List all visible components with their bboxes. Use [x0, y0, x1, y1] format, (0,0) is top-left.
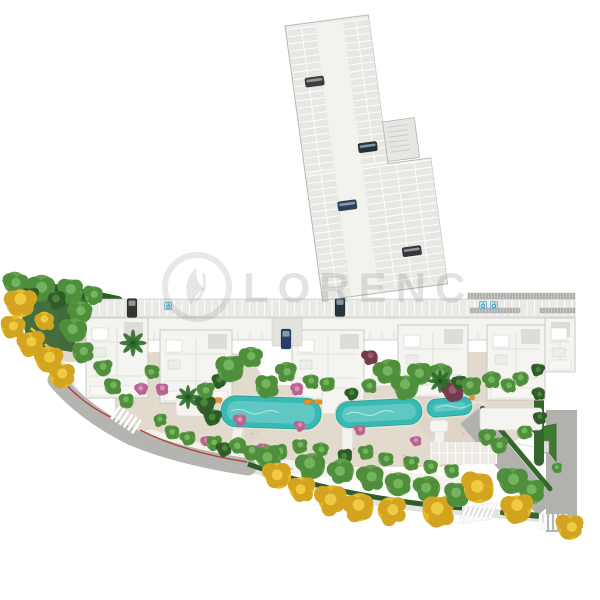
canopy — [222, 445, 228, 451]
car-windshield — [129, 301, 136, 306]
canopy — [237, 417, 242, 422]
canopy — [400, 379, 410, 389]
roof-unit — [208, 334, 227, 349]
canopy — [80, 347, 88, 355]
tree-green — [319, 377, 334, 391]
canopy — [415, 368, 424, 377]
zebra-stripe — [539, 514, 542, 530]
zebra-stripe — [549, 514, 552, 530]
furniture — [406, 355, 418, 364]
canopy — [522, 428, 528, 434]
canopy — [506, 382, 512, 388]
vent-grille — [468, 293, 575, 299]
palm-tree — [120, 330, 147, 357]
canopy — [169, 429, 175, 435]
tree-yellow — [314, 485, 346, 516]
tree-green — [517, 425, 532, 439]
canopy — [537, 414, 542, 419]
canopy — [484, 434, 491, 441]
site-svg: LORENC — [0, 0, 600, 600]
stair-core — [383, 118, 420, 162]
canopy — [471, 480, 484, 493]
canopy — [9, 321, 18, 330]
canopy — [262, 452, 272, 462]
canopy — [363, 448, 369, 454]
tree-green — [356, 465, 384, 491]
canopy — [488, 376, 495, 383]
canopy — [335, 466, 345, 476]
pebble — [403, 454, 405, 456]
canopy — [90, 291, 98, 299]
roof-unit — [444, 329, 463, 344]
canopy — [272, 469, 283, 480]
car — [281, 329, 291, 349]
canopy — [298, 423, 302, 427]
canopy — [157, 417, 162, 422]
canopy — [393, 479, 403, 489]
canopy — [15, 293, 27, 305]
canopy — [110, 382, 117, 389]
canopy — [308, 378, 314, 384]
tree-green — [295, 453, 325, 481]
tree-green — [403, 456, 419, 471]
canopy — [567, 522, 577, 532]
room — [166, 340, 182, 352]
pebble — [353, 448, 355, 450]
canopy — [52, 295, 60, 303]
canopy — [57, 368, 67, 378]
tree-yellow — [556, 515, 584, 540]
canopy — [296, 484, 306, 494]
canopy — [456, 379, 462, 385]
room — [493, 335, 509, 347]
canopy — [148, 369, 154, 375]
canopy — [353, 499, 365, 511]
tree-yellow — [378, 497, 406, 526]
canopy — [536, 367, 541, 372]
canopy — [431, 502, 444, 515]
pebble — [251, 433, 253, 435]
furniture — [300, 360, 312, 369]
deck-pad — [480, 408, 542, 430]
tree-green — [385, 472, 411, 496]
site-plan-rendering: LORENC — [0, 0, 600, 600]
canopy — [319, 447, 325, 453]
canopy — [211, 439, 217, 445]
canopy — [200, 399, 208, 407]
furniture — [495, 355, 507, 364]
room — [551, 328, 567, 340]
vent-grille — [540, 308, 575, 313]
room — [92, 328, 108, 340]
canopy — [223, 360, 234, 371]
tree-green — [119, 394, 134, 409]
swimming-pool — [333, 396, 424, 431]
canopy — [26, 337, 36, 347]
lounger — [314, 400, 322, 404]
zebra-stripe — [544, 514, 547, 530]
canopy — [537, 391, 542, 396]
canopy — [66, 284, 76, 294]
car-windshield — [283, 331, 290, 337]
canopy — [295, 386, 300, 391]
canopy — [283, 368, 291, 376]
canopy — [383, 456, 389, 462]
canopy — [367, 383, 373, 389]
canopy — [44, 352, 55, 363]
canopy — [41, 315, 49, 323]
canopy — [368, 353, 374, 359]
watermark-text: LORENC — [243, 264, 474, 311]
furniture — [553, 348, 565, 357]
roof-unit — [521, 329, 540, 344]
canopy — [496, 442, 503, 449]
canopy — [409, 459, 415, 465]
room — [404, 335, 420, 347]
swimming-pool — [218, 393, 323, 432]
canopy — [297, 442, 303, 448]
palm-trunk — [438, 379, 442, 383]
canopy — [325, 494, 337, 506]
palm-tree — [428, 369, 452, 393]
canopy — [414, 438, 418, 442]
canopy — [383, 366, 393, 376]
car — [127, 299, 137, 318]
tree-yellow — [342, 493, 373, 522]
canopy — [367, 472, 377, 482]
canopy — [341, 453, 347, 459]
parking-structure-body — [285, 9, 448, 300]
canopy — [555, 465, 559, 469]
tree-green — [423, 460, 437, 474]
canopy — [209, 413, 216, 420]
canopy — [527, 484, 537, 494]
canopy — [451, 488, 461, 498]
canopy — [511, 499, 523, 511]
palm-trunk — [186, 395, 190, 399]
canopy — [323, 380, 329, 386]
canopy — [268, 385, 279, 396]
pebble — [290, 468, 292, 470]
canopy — [68, 324, 78, 334]
canopy — [261, 379, 270, 388]
canopy — [123, 396, 129, 402]
canopy — [508, 474, 519, 485]
canopy — [184, 434, 190, 440]
canopy — [138, 386, 143, 391]
tree-yellow — [262, 463, 291, 489]
canopy — [358, 427, 362, 431]
pebble — [462, 433, 464, 435]
furniture — [94, 348, 106, 357]
lounger — [304, 400, 312, 404]
palm-trunk — [131, 341, 135, 345]
canopy — [304, 458, 315, 469]
furniture — [168, 360, 180, 369]
parking-structure — [285, 9, 448, 300]
tree-yellow — [288, 477, 315, 502]
canopy — [518, 374, 524, 380]
tree-green — [275, 362, 297, 382]
canopy — [203, 387, 210, 394]
canopy — [100, 363, 107, 370]
canopy — [449, 467, 455, 473]
canopy — [45, 321, 54, 330]
canopy — [349, 390, 354, 395]
canopy — [387, 504, 398, 515]
canopy — [76, 306, 85, 315]
tree-flowering — [156, 383, 169, 395]
tree-green — [378, 452, 393, 466]
canopy — [160, 385, 165, 390]
canopy — [247, 352, 255, 360]
canopy — [11, 278, 20, 287]
canopy — [321, 384, 329, 392]
roof-unit — [340, 334, 359, 349]
canopy — [428, 463, 434, 469]
canopy — [234, 442, 241, 449]
canopy — [421, 483, 431, 493]
deck-pad — [430, 420, 448, 432]
canopy — [466, 381, 474, 389]
palm-tree — [176, 385, 200, 409]
terrace — [549, 360, 571, 370]
